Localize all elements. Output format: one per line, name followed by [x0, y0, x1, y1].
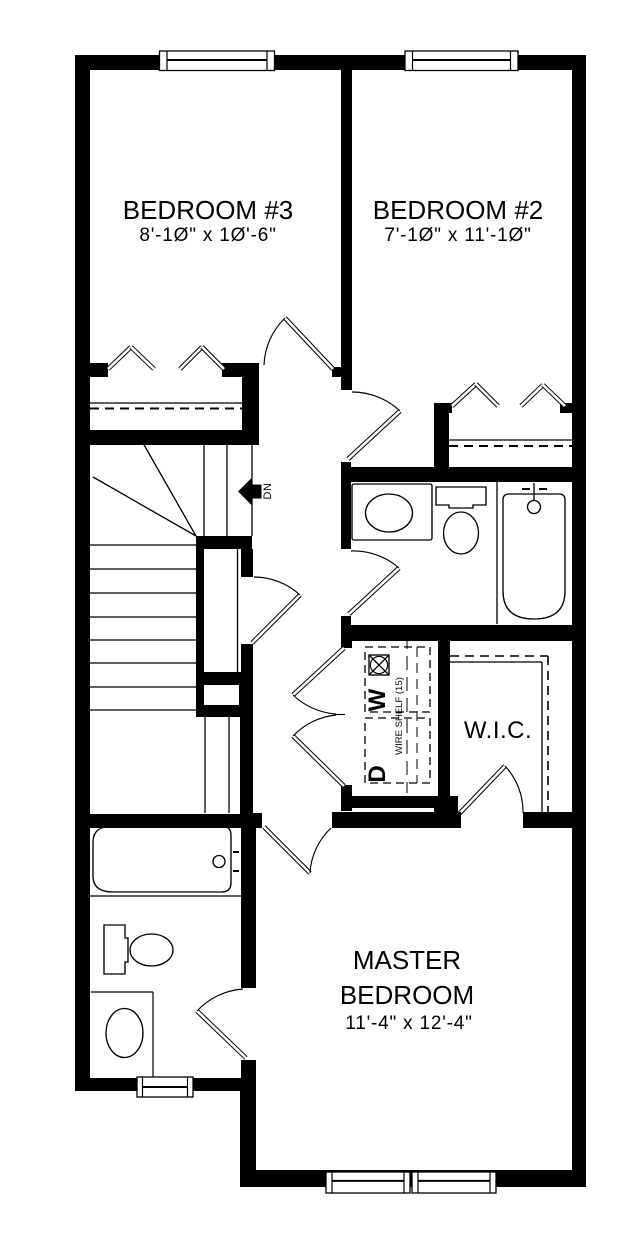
svg-text:D: D — [364, 765, 391, 782]
svg-text:8'-1Ø" x 1Ø'-6": 8'-1Ø" x 1Ø'-6" — [139, 225, 276, 246]
svg-text:WIRE SHELF (15): WIRE SHELF (15) — [394, 677, 405, 755]
svg-text:DN: DN — [262, 483, 274, 500]
svg-text:11'-4" x 12'-4": 11'-4" x 12'-4" — [345, 1013, 472, 1034]
svg-text:7'-1Ø" x 11'-1Ø": 7'-1Ø" x 11'-1Ø" — [384, 225, 531, 246]
svg-text:BEDROOM #2: BEDROOM #2 — [373, 195, 544, 225]
svg-text:W.I.C.: W.I.C. — [464, 717, 532, 744]
svg-text:BEDROOM: BEDROOM — [340, 980, 474, 1010]
svg-text:MASTER: MASTER — [353, 945, 461, 975]
svg-text:W: W — [364, 688, 391, 711]
svg-text:BEDROOM #3: BEDROOM #3 — [123, 195, 294, 225]
